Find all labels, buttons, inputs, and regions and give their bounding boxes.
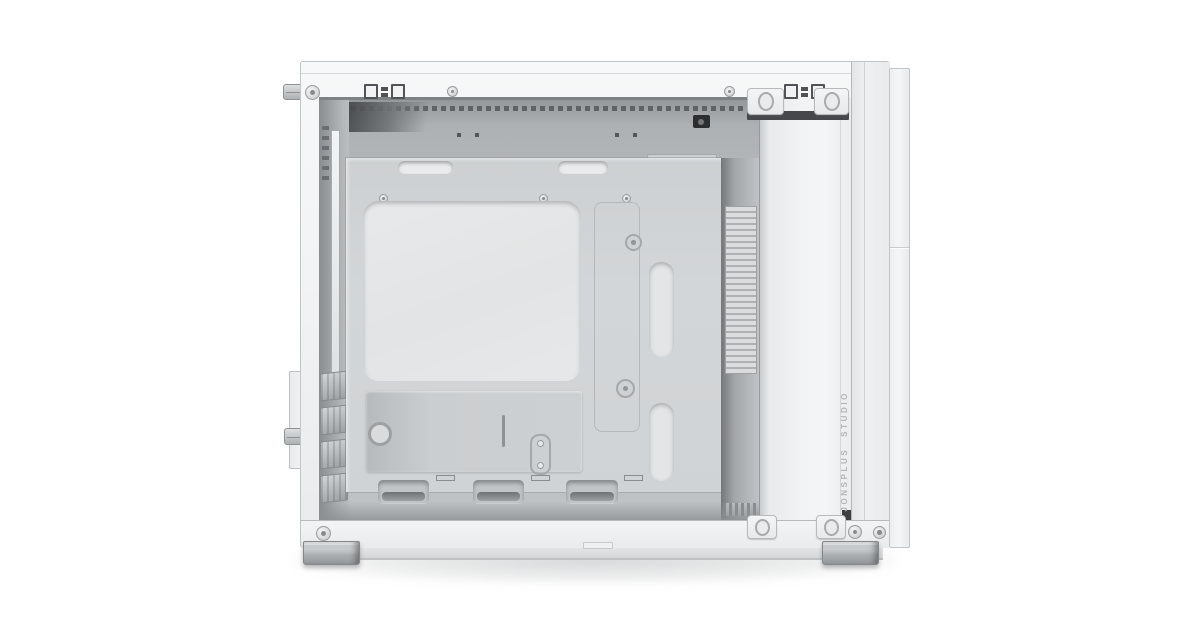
clip-cutout [784,84,798,99]
screw [848,525,862,539]
tab-hole [755,519,770,536]
chassis-interior [319,97,759,525]
clip-cutout-center [381,87,388,97]
fan-vent-louvers [725,206,757,374]
front-panel-edge [889,68,910,548]
motherboard-tray [346,158,721,492]
screw [316,526,331,541]
cable-cutout-bottom [566,480,618,504]
standoff-ring [625,234,642,251]
tie-down-slot [531,475,550,481]
cable-cutout-bottom [473,480,524,504]
mounting-tab [816,515,846,539]
rear-vent-slots [322,126,329,184]
cpu-cooler-cutout [363,201,581,381]
clip-cutout-center [801,87,808,97]
mounting-tab [747,88,784,115]
tie-down-slot [624,475,643,481]
oval-bracket [530,434,551,475]
screw [305,85,320,100]
bracket-hole [537,462,544,469]
cable-grommet [368,422,392,446]
expansion-slot [320,371,348,402]
standoff-marks [615,133,637,137]
front-drive-column: JONSPLUS STUDIO [759,97,852,522]
clip-cutout [364,84,378,99]
cable-slot-vertical [649,262,674,357]
top-panel-seam [301,73,889,74]
standoff-marks [457,133,479,137]
mounting-tab [814,88,849,115]
base-notch [583,542,613,549]
band-seam [864,62,865,547]
case-body: JONSPLUS STUDIO [300,61,890,548]
psu-mount-panel [366,391,582,472]
tie-down-slot [436,475,455,481]
tab-hole [824,519,839,536]
front-face-band [851,62,890,547]
expansion-slot [320,473,348,504]
tab-hole [824,92,840,111]
front-panel-seam [890,247,909,248]
bottom-rail [301,520,889,548]
expansion-slot-covers [320,372,348,508]
cable-slot-top [398,161,453,174]
panel-slot [502,415,505,447]
screw [724,86,735,97]
case-foot-left [303,541,360,565]
brand-text: JONSPLUS STUDIO [840,391,849,512]
cable-cutout-bottom [378,480,429,504]
mounting-tab [747,515,777,539]
top-clip-cutouts-left [364,84,405,99]
screw [447,86,458,97]
expansion-slot [320,405,348,436]
standoff-ring [616,379,635,398]
rear-panel-column [319,100,349,525]
cable-slot-top [558,161,608,174]
clip-cutout [391,84,405,99]
power-connector [693,115,710,128]
screw [873,526,886,539]
case-foot-right [822,541,879,565]
tab-hole [758,92,774,111]
front-fan-recess [721,158,759,525]
cable-slot-vertical [649,403,674,481]
expansion-slot [320,439,348,470]
product-photo-pc-case: JONSPLUS STUDIO [0,0,1200,630]
bracket-hole [537,440,544,447]
rear-edge-strip [331,130,340,374]
